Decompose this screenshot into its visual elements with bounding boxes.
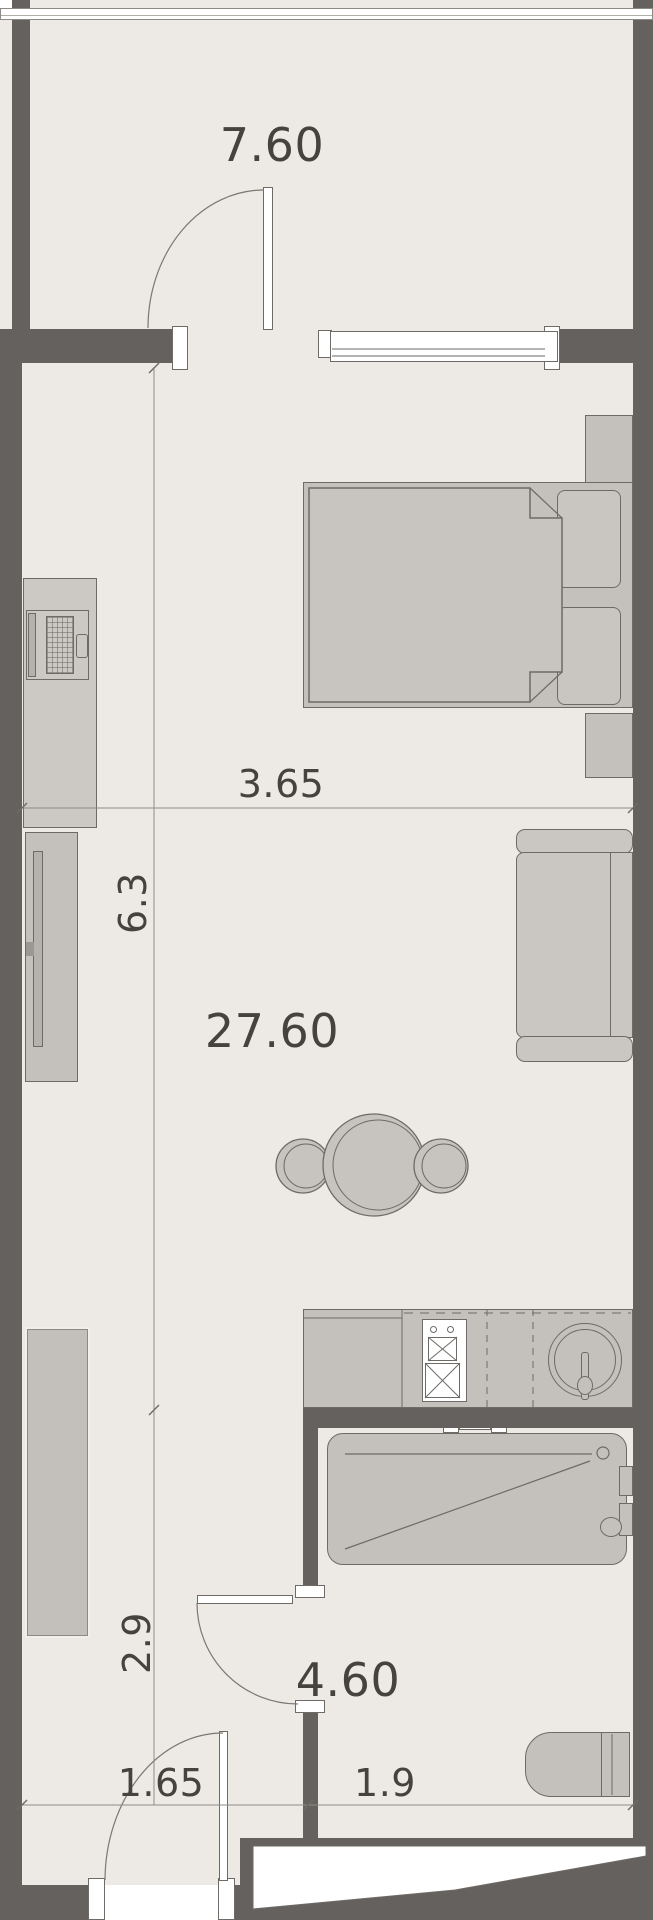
balcony-door-arc: [148, 190, 264, 328]
wall-bathroom-top: [303, 1408, 653, 1428]
tv: [33, 851, 43, 1047]
entrance-door-arc: [105, 1733, 223, 1880]
tv-mount: [26, 942, 34, 956]
nightstand: [585, 415, 633, 483]
sink-faucet-handle: [577, 1376, 593, 1395]
balcony-railing-line: [1, 15, 652, 16]
living-area-label: 27.60: [205, 1008, 339, 1054]
wall-right: [633, 0, 653, 1920]
balcony-railing: [0, 8, 653, 20]
wall-left: [0, 329, 22, 1885]
dim-label-living-width: 3.65: [238, 765, 325, 803]
wardrobe: [25, 1327, 90, 1638]
dim-label-hall-width: 1.65: [118, 1764, 205, 1802]
shower-control: [619, 1503, 633, 1536]
wall-balcony-left: [12, 0, 30, 330]
coffee-table-small: [276, 1139, 330, 1193]
laptop-mouse: [76, 634, 88, 658]
pillow: [557, 490, 621, 588]
balcony-area-label: 7.60: [220, 122, 324, 168]
balcony-door-leaf: [263, 187, 273, 330]
bathroom-door-leaf: [197, 1595, 293, 1604]
sofa-backrest: [610, 852, 633, 1038]
coffee-table-small-ring: [422, 1144, 466, 1188]
sofa-armrest: [516, 1036, 633, 1062]
wall-bathroom-left: [303, 1408, 318, 1587]
entrance-door-leaf: [219, 1731, 228, 1881]
bathtub: [327, 1433, 627, 1565]
coffee-table-large: [323, 1114, 425, 1216]
sofa-seat: [516, 852, 612, 1038]
toilet-bowl: [525, 1732, 602, 1797]
entrance-door-jamb: [218, 1878, 235, 1920]
dim-label-hall-length: 2.9: [118, 1612, 156, 1674]
toilet-tank: [601, 1732, 630, 1797]
window: [330, 331, 558, 362]
stove-knob: [430, 1326, 437, 1333]
window-jamb: [172, 326, 188, 370]
bathroom-area-label: 4.60: [296, 1657, 400, 1703]
sofa-armrest: [516, 829, 633, 854]
coffee-table-small-ring: [284, 1144, 328, 1188]
bathroom-door-arc: [197, 1603, 298, 1704]
wall-balcony-separation-left: [0, 329, 175, 363]
dim-tick: [149, 363, 159, 373]
entrance-door-jamb: [88, 1878, 105, 1920]
nightstand: [585, 713, 633, 778]
stove-burner: [428, 1337, 457, 1361]
wall-balcony-separation-right: [558, 329, 653, 363]
wall-shaft-block: [240, 1838, 653, 1920]
dim-tick: [149, 1405, 159, 1415]
entrance-opening: [105, 1885, 218, 1920]
coffee-table-large-ring: [333, 1120, 423, 1210]
bathroom-door-jamb: [295, 1585, 325, 1598]
laptop-keyboard: [46, 616, 74, 674]
shower-control: [619, 1466, 633, 1496]
dim-label-bathroom-width: 1.9: [354, 1764, 416, 1802]
floor-plan: 7.60 27.60 4.60 3.65 6.3 2.9 1.65 1.9: [0, 0, 653, 1920]
stove-burner: [425, 1363, 460, 1398]
shower-head: [600, 1517, 622, 1537]
dim-label-living-length: 6.3: [114, 872, 152, 934]
stove-knob: [447, 1326, 454, 1333]
pillow: [557, 607, 621, 705]
coffee-table-small: [414, 1139, 468, 1193]
laptop-screen: [28, 613, 36, 677]
